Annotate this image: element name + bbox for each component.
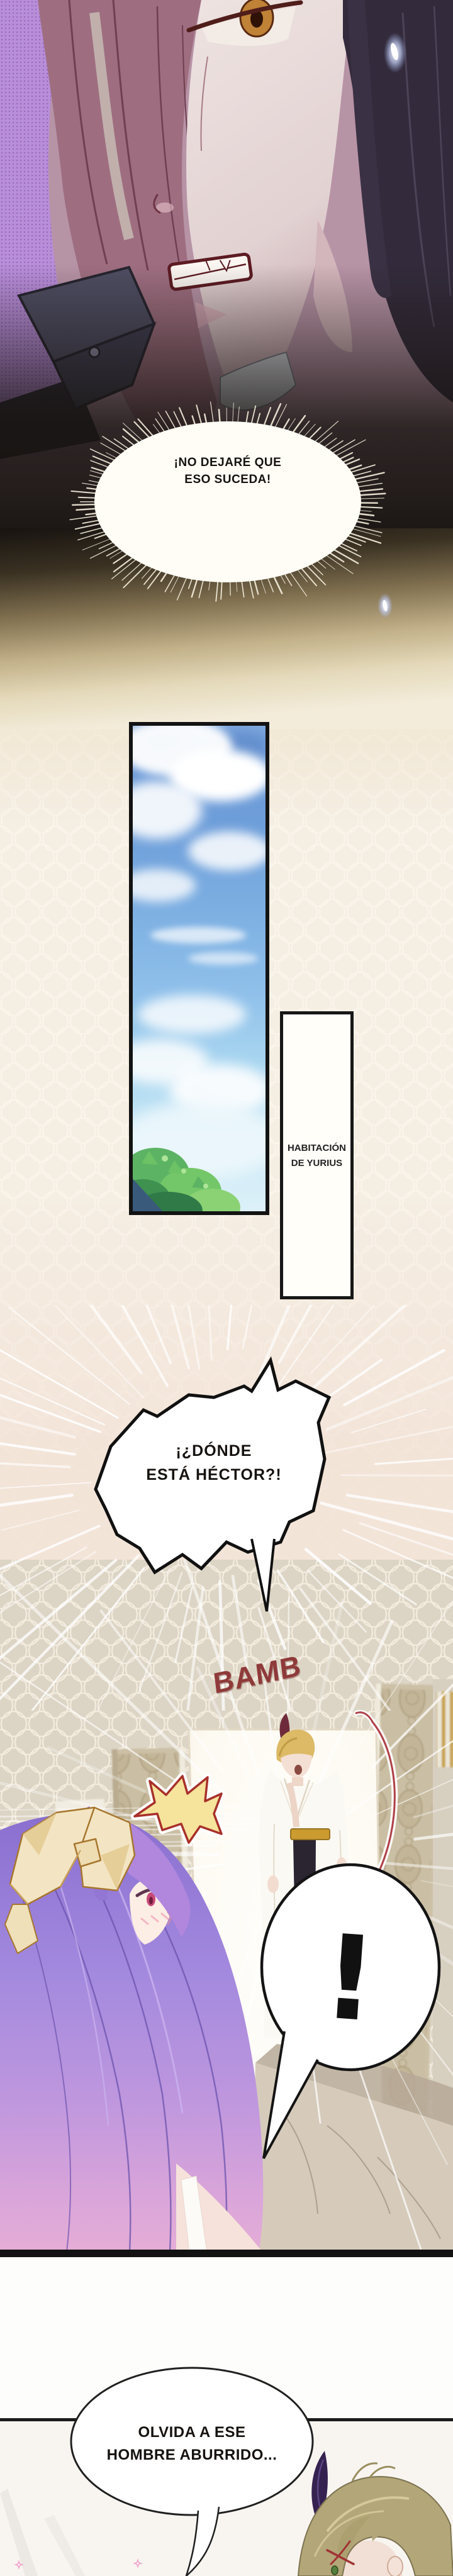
oval-bubble-text: OLVIDA A ESE HOMBRE ABURRIDO... [72,2421,311,2467]
spiky-bubble-tail [252,1539,274,1611]
floating-sparkle [377,593,393,618]
gold-strip-right [437,1692,453,1767]
exclamation-mark: ! [318,1909,381,2048]
caption-line-1: HABITACIÓN [288,1141,346,1155]
panel-closeup-angry-face [0,0,453,730]
burst-line-2: ESO SUCEDA! [121,471,335,488]
burst-bubble-text: ¡NO DEJARÉ QUE ESO SUCEDA! [121,454,335,488]
location-caption-box: HABITACIÓN DE YURIUS [280,1011,354,1299]
oval-line-2: HOMBRE ABURRIDO... [72,2444,311,2467]
oval-line-1: OLVIDA A ESE [72,2421,311,2444]
cloud-wisp [188,952,259,965]
spiky-bubble-text: ¡¿DÓNDE ESTÁ HÉCTOR?! [91,1439,337,1487]
cloud [129,869,196,902]
foliage [130,1082,250,1214]
cloud-wisp [150,927,246,943]
hand [267,1875,279,1893]
cloud [188,831,269,870]
gold-belt [291,1829,330,1840]
panel-border-bottom [0,2250,453,2257]
ear [388,2557,403,2576]
hair-glint-sparkle [384,33,406,73]
spiky-line-2: ESTÁ HÉCTOR?! [91,1463,337,1487]
burst-speech-bubble [94,421,361,582]
burst-line-1: ¡NO DEJARÉ QUE [121,454,335,471]
open-mouth [294,1765,302,1775]
panel-sky-window [129,722,269,1215]
webtoon-page: ¡NO DEJARÉ QUE ESO SUCEDA! [0,0,453,2576]
cloud [138,995,246,1034]
oval-bubble-tail [186,2507,219,2576]
green-eye [332,2566,338,2575]
caption-line-2: DE YURIUS [291,1157,342,1170]
spiky-line-1: ¡¿DÓNDE [91,1439,337,1463]
